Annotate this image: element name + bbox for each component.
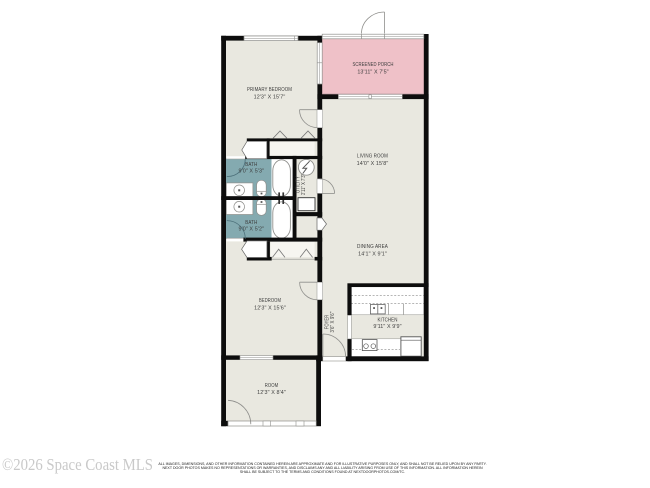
svg-text:9'11" X 9'9": 9'11" X 9'9" xyxy=(373,324,401,330)
svg-text:3'6" X 9'6": 3'6" X 9'6" xyxy=(330,312,336,333)
svg-text:12'3" X 8'4": 12'3" X 8'4" xyxy=(257,390,286,396)
svg-text:14'1" X 9'1": 14'1" X 9'1" xyxy=(358,252,387,258)
svg-text:9'0" X 5'2": 9'0" X 5'2" xyxy=(239,227,265,233)
svg-text:12'3" X 15'6": 12'3" X 15'6" xyxy=(254,306,286,312)
svg-text:9'0" X 5'3": 9'0" X 5'3" xyxy=(239,169,265,175)
svg-text:ROOM: ROOM xyxy=(265,383,279,389)
svg-text:©2026 Space Coast MLS: ©2026 Space Coast MLS xyxy=(2,455,153,474)
svg-text:SHALL BE SUBJECT TO THE TERMS: SHALL BE SUBJECT TO THE TERMS AND CONDIT… xyxy=(240,470,405,474)
svg-text:KITCHEN: KITCHEN xyxy=(378,318,398,324)
svg-text:DINING AREA: DINING AREA xyxy=(357,244,388,250)
svg-text:13'11" X 7'5": 13'11" X 7'5" xyxy=(357,70,388,76)
svg-text:BEDROOM: BEDROOM xyxy=(259,298,281,304)
svg-text:14'0" X 15'8": 14'0" X 15'8" xyxy=(357,161,389,167)
svg-text:LIVING ROOM: LIVING ROOM xyxy=(357,154,388,160)
svg-text:BATH: BATH xyxy=(245,220,257,226)
svg-text:12'3" X 15'7": 12'3" X 15'7" xyxy=(254,95,286,101)
svg-text:BATH: BATH xyxy=(245,162,257,168)
svg-text:SCREENED PORCH: SCREENED PORCH xyxy=(353,62,394,68)
svg-text:2'11" X 7'3": 2'11" X 7'3" xyxy=(301,174,307,195)
svg-text:PRIMARY BEDROOM: PRIMARY BEDROOM xyxy=(247,87,292,93)
